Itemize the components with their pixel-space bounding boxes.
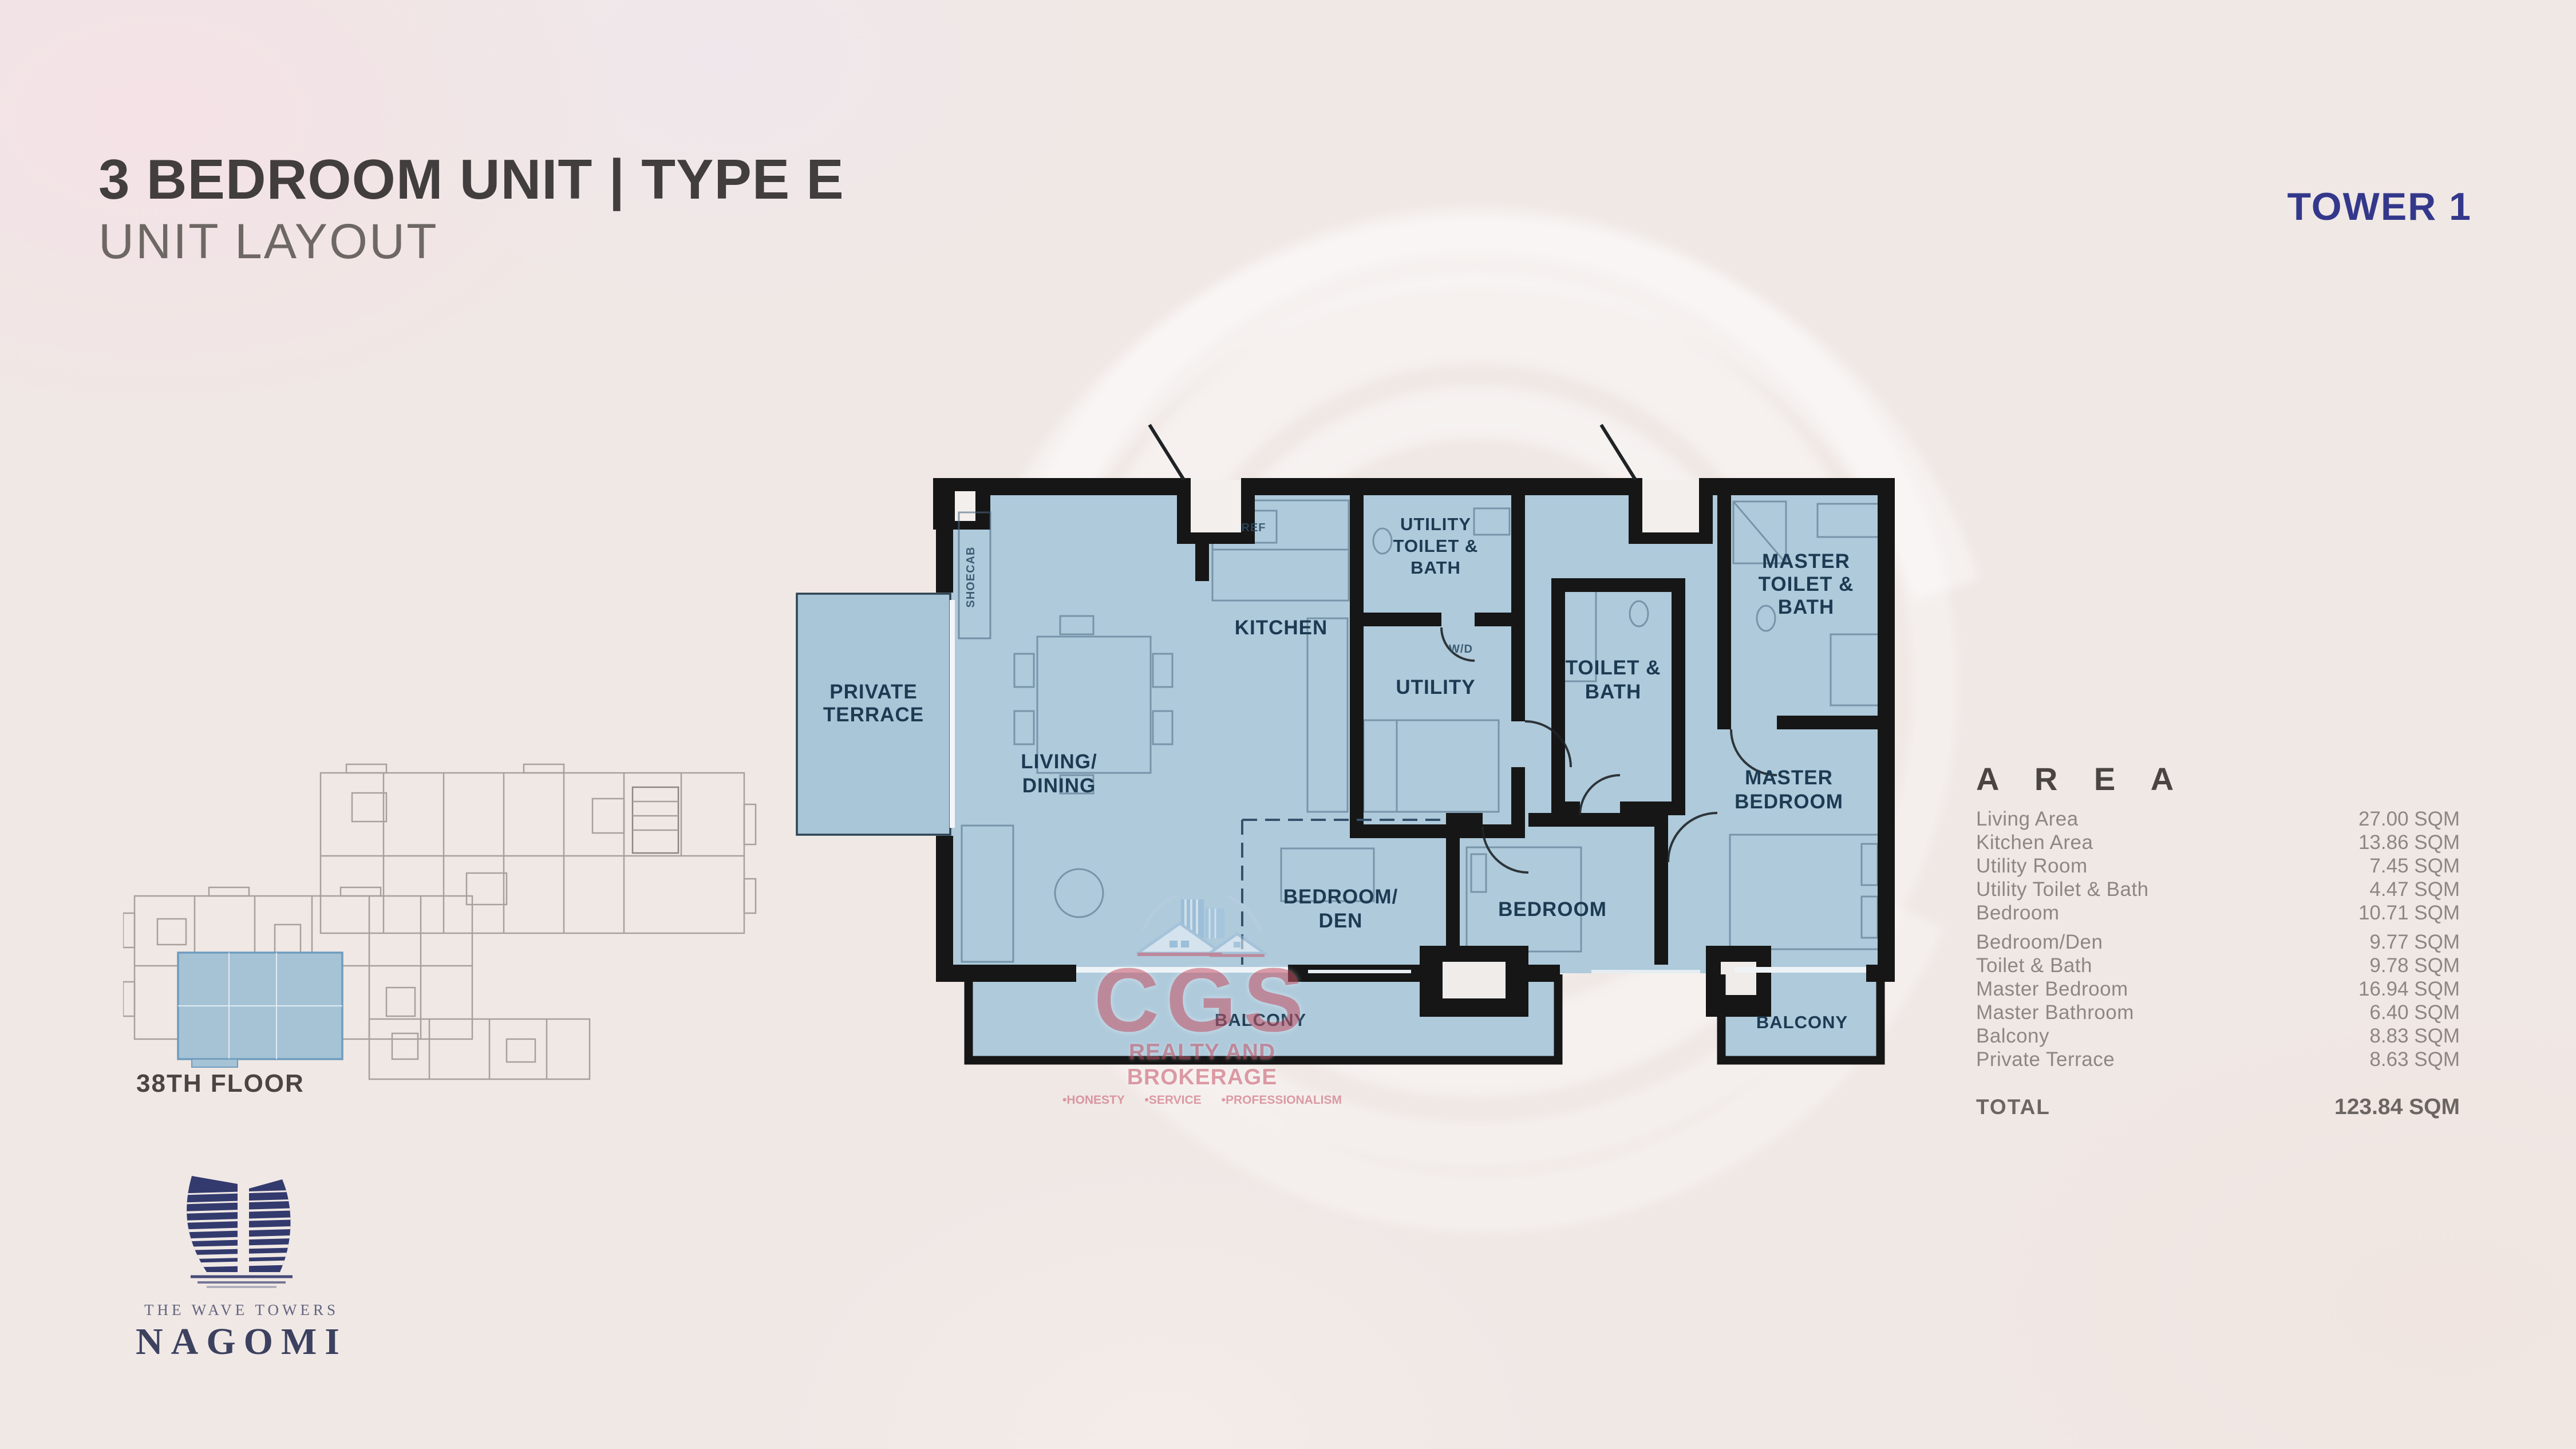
area-total-row: TOTAL 123.84 SQM [1976, 1095, 2460, 1120]
room-label-private-terrace: PRIVATE [829, 681, 918, 703]
area-row: Utility Toilet & Bath4.47 SQM [1976, 878, 2460, 902]
area-table-heading: A R E A [1976, 760, 2460, 797]
room-label-bedroom-den: DEN [1319, 910, 1363, 932]
area-row: Private Terrace8.63 SQM [1976, 1048, 2460, 1072]
room-label-toilet-bath: TOILET & [1566, 657, 1661, 679]
room-label-utility: UTILITY [1396, 676, 1475, 698]
page-title: 3 BEDROOM UNIT | TYPE E [98, 150, 844, 209]
logo-brand-line: THE WAVE TOWERS [121, 1301, 362, 1319]
entry-door-swings [1149, 425, 1635, 480]
room-label-bedroom-den: BEDROOM/ [1283, 886, 1398, 908]
area-row: Master Bathroom6.40 SQM [1976, 1001, 2460, 1025]
room-label-balcony-main: BALCONY [1215, 1010, 1306, 1030]
room-label-living-dining: LIVING/ [1021, 751, 1097, 773]
area-row: Kitchen Area13.86 SQM [1976, 831, 2460, 855]
page-subtitle: UNIT LAYOUT [98, 217, 844, 266]
area-total-label: TOTAL [1976, 1095, 2050, 1119]
nagomi-logo: THE WAVE TOWERS NAGOMI [121, 1168, 362, 1364]
unit-floor-plan: PRIVATE TERRACE LIVING/ DINING KITCHEN U… [790, 406, 1929, 1088]
fixture-label-shoe-cabinet: SHOECAB [965, 546, 977, 607]
wave-towers-logo-icon [181, 1168, 302, 1289]
area-row: Master Bedroom16.94 SQM [1976, 978, 2460, 1001]
area-total-value: 123.84 SQM [2334, 1095, 2460, 1120]
room-label-master-toilet-bath: BATH [1778, 596, 1835, 618]
key-plan-highlighted-unit [178, 953, 342, 1067]
room-label-living-dining: DINING [1022, 775, 1096, 797]
room-label-master-bedroom: BEDROOM [1735, 791, 1843, 813]
room-label-bedroom: BEDROOM [1498, 898, 1607, 921]
room-label-kitchen: KITCHEN [1235, 617, 1328, 639]
key-plan-floor-label: 38TH FLOOR [136, 1069, 305, 1098]
area-row: Toilet & Bath9.78 SQM [1976, 954, 2460, 978]
room-label-master-toilet-bath: TOILET & [1759, 573, 1854, 595]
room-label-utility-toilet-bath: BATH [1411, 558, 1461, 578]
fixture-label-ref: REF [1242, 522, 1266, 534]
area-row: Balcony8.83 SQM [1976, 1025, 2460, 1048]
area-row: Bedroom/Den9.77 SQM [1976, 931, 2460, 954]
area-table: A R E A Living Area27.00 SQM Kitchen Are… [1976, 760, 2460, 1120]
room-label-toilet-bath: BATH [1585, 681, 1642, 703]
title-block: 3 BEDROOM UNIT | TYPE E UNIT LAYOUT [98, 150, 844, 266]
tower-label: TOWER 1 [2287, 184, 2472, 229]
room-label-master-toilet-bath: MASTER [1762, 550, 1850, 573]
room-label-balcony-master: BALCONY [1756, 1012, 1848, 1032]
fixture-label-washer-dryer: W/D [1449, 643, 1473, 656]
key-plan-38th-floor [123, 753, 764, 1085]
room-label-master-bedroom: MASTER [1745, 767, 1833, 789]
watermark-tagline: •HONESTY •SERVICE •PROFESSIONALISM [1050, 1093, 1354, 1107]
area-row: Bedroom10.71 SQM [1976, 902, 2460, 925]
area-row: Utility Room7.45 SQM [1976, 855, 2460, 878]
area-row: Living Area27.00 SQM [1976, 808, 2460, 831]
room-label-utility-toilet-bath: UTILITY [1400, 514, 1471, 534]
room-label-utility-toilet-bath: TOILET & [1393, 536, 1479, 556]
logo-project-name: NAGOMI [121, 1320, 362, 1364]
room-label-private-terrace: TERRACE [823, 704, 924, 726]
